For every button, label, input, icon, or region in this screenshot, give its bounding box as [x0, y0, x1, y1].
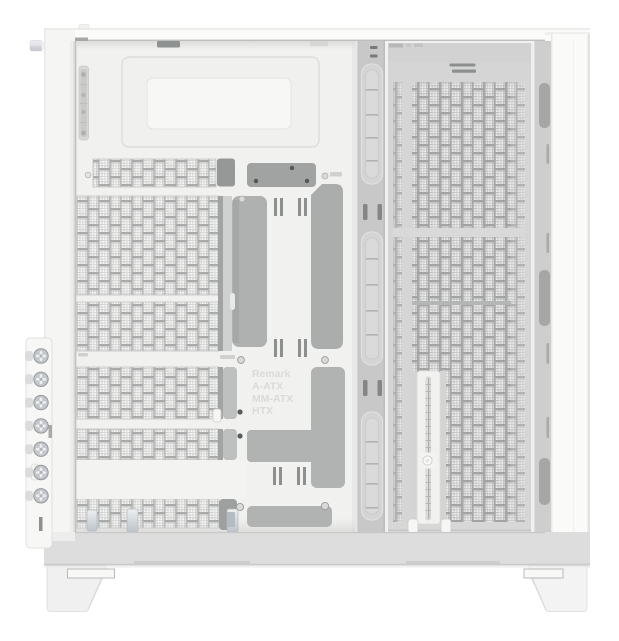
svg-text:HTX: HTX: [252, 405, 273, 417]
svg-text:A-ATX: A-ATX: [252, 381, 283, 393]
svg-text:Remark: Remark: [252, 368, 291, 380]
svg-text:MM-ATX: MM-ATX: [252, 393, 293, 405]
